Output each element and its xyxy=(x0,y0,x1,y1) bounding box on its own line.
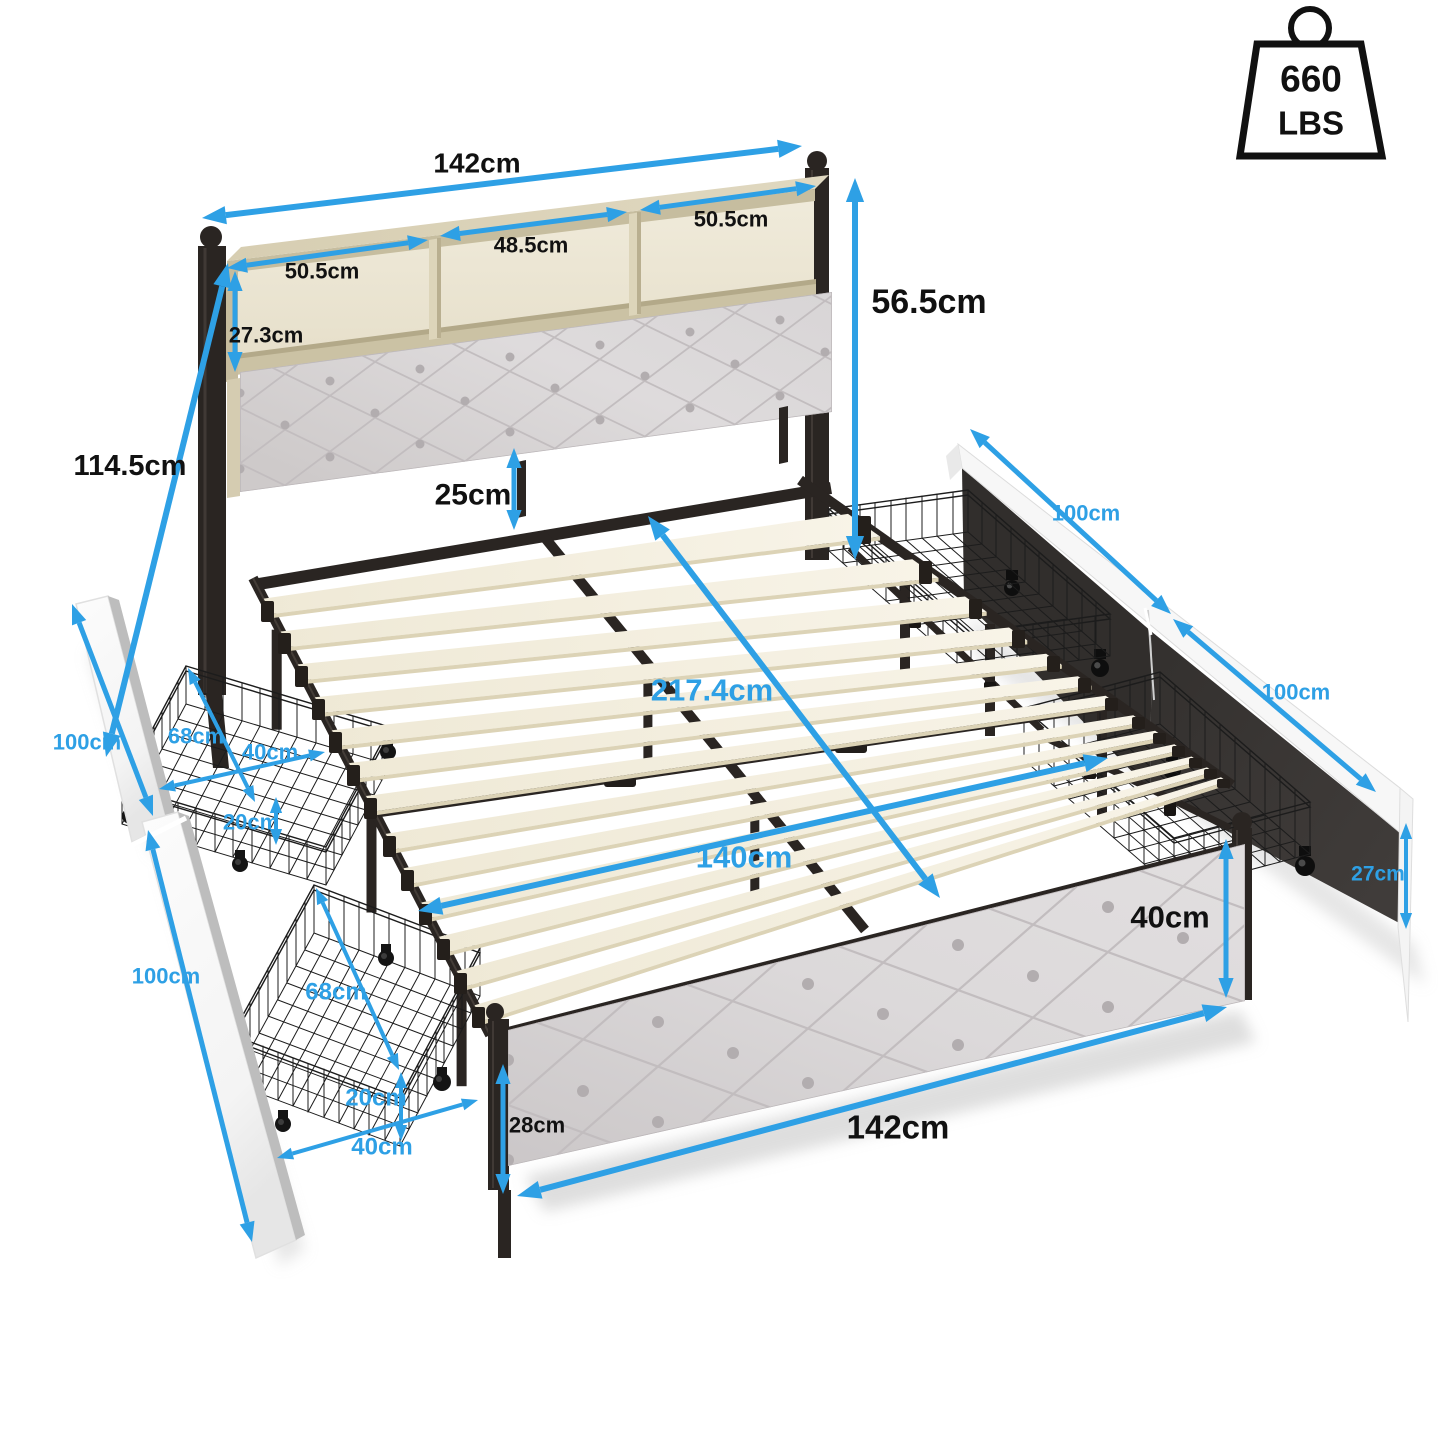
svg-text:100cm: 100cm xyxy=(53,730,122,755)
svg-text:40cm: 40cm xyxy=(242,740,298,765)
svg-text:142cm: 142cm xyxy=(847,1109,950,1146)
svg-text:27.3cm: 27.3cm xyxy=(229,323,304,348)
svg-text:56.5cm: 56.5cm xyxy=(871,283,986,321)
svg-text:50.5cm: 50.5cm xyxy=(285,259,360,284)
svg-text:LBS: LBS xyxy=(1278,105,1344,142)
svg-text:48.5cm: 48.5cm xyxy=(494,233,569,258)
svg-text:100cm: 100cm xyxy=(1052,501,1121,526)
svg-text:25cm: 25cm xyxy=(435,479,512,512)
svg-text:217.4cm: 217.4cm xyxy=(651,673,773,708)
svg-text:27cm: 27cm xyxy=(1351,863,1405,886)
svg-text:68cm: 68cm xyxy=(305,979,366,1006)
svg-text:100cm: 100cm xyxy=(132,964,201,989)
svg-text:20cm: 20cm xyxy=(223,810,279,835)
svg-text:28cm: 28cm xyxy=(509,1113,565,1138)
svg-text:50.5cm: 50.5cm xyxy=(694,207,769,232)
svg-text:68cm: 68cm xyxy=(168,724,224,749)
svg-text:40cm: 40cm xyxy=(1130,900,1209,935)
svg-text:100cm: 100cm xyxy=(1262,680,1331,705)
svg-text:40cm: 40cm xyxy=(351,1134,412,1161)
svg-text:140cm: 140cm xyxy=(696,840,793,875)
svg-text:660: 660 xyxy=(1280,59,1342,100)
svg-text:20cm: 20cm xyxy=(345,1085,406,1112)
svg-text:114.5cm: 114.5cm xyxy=(74,450,187,482)
svg-text:142cm: 142cm xyxy=(433,148,520,179)
